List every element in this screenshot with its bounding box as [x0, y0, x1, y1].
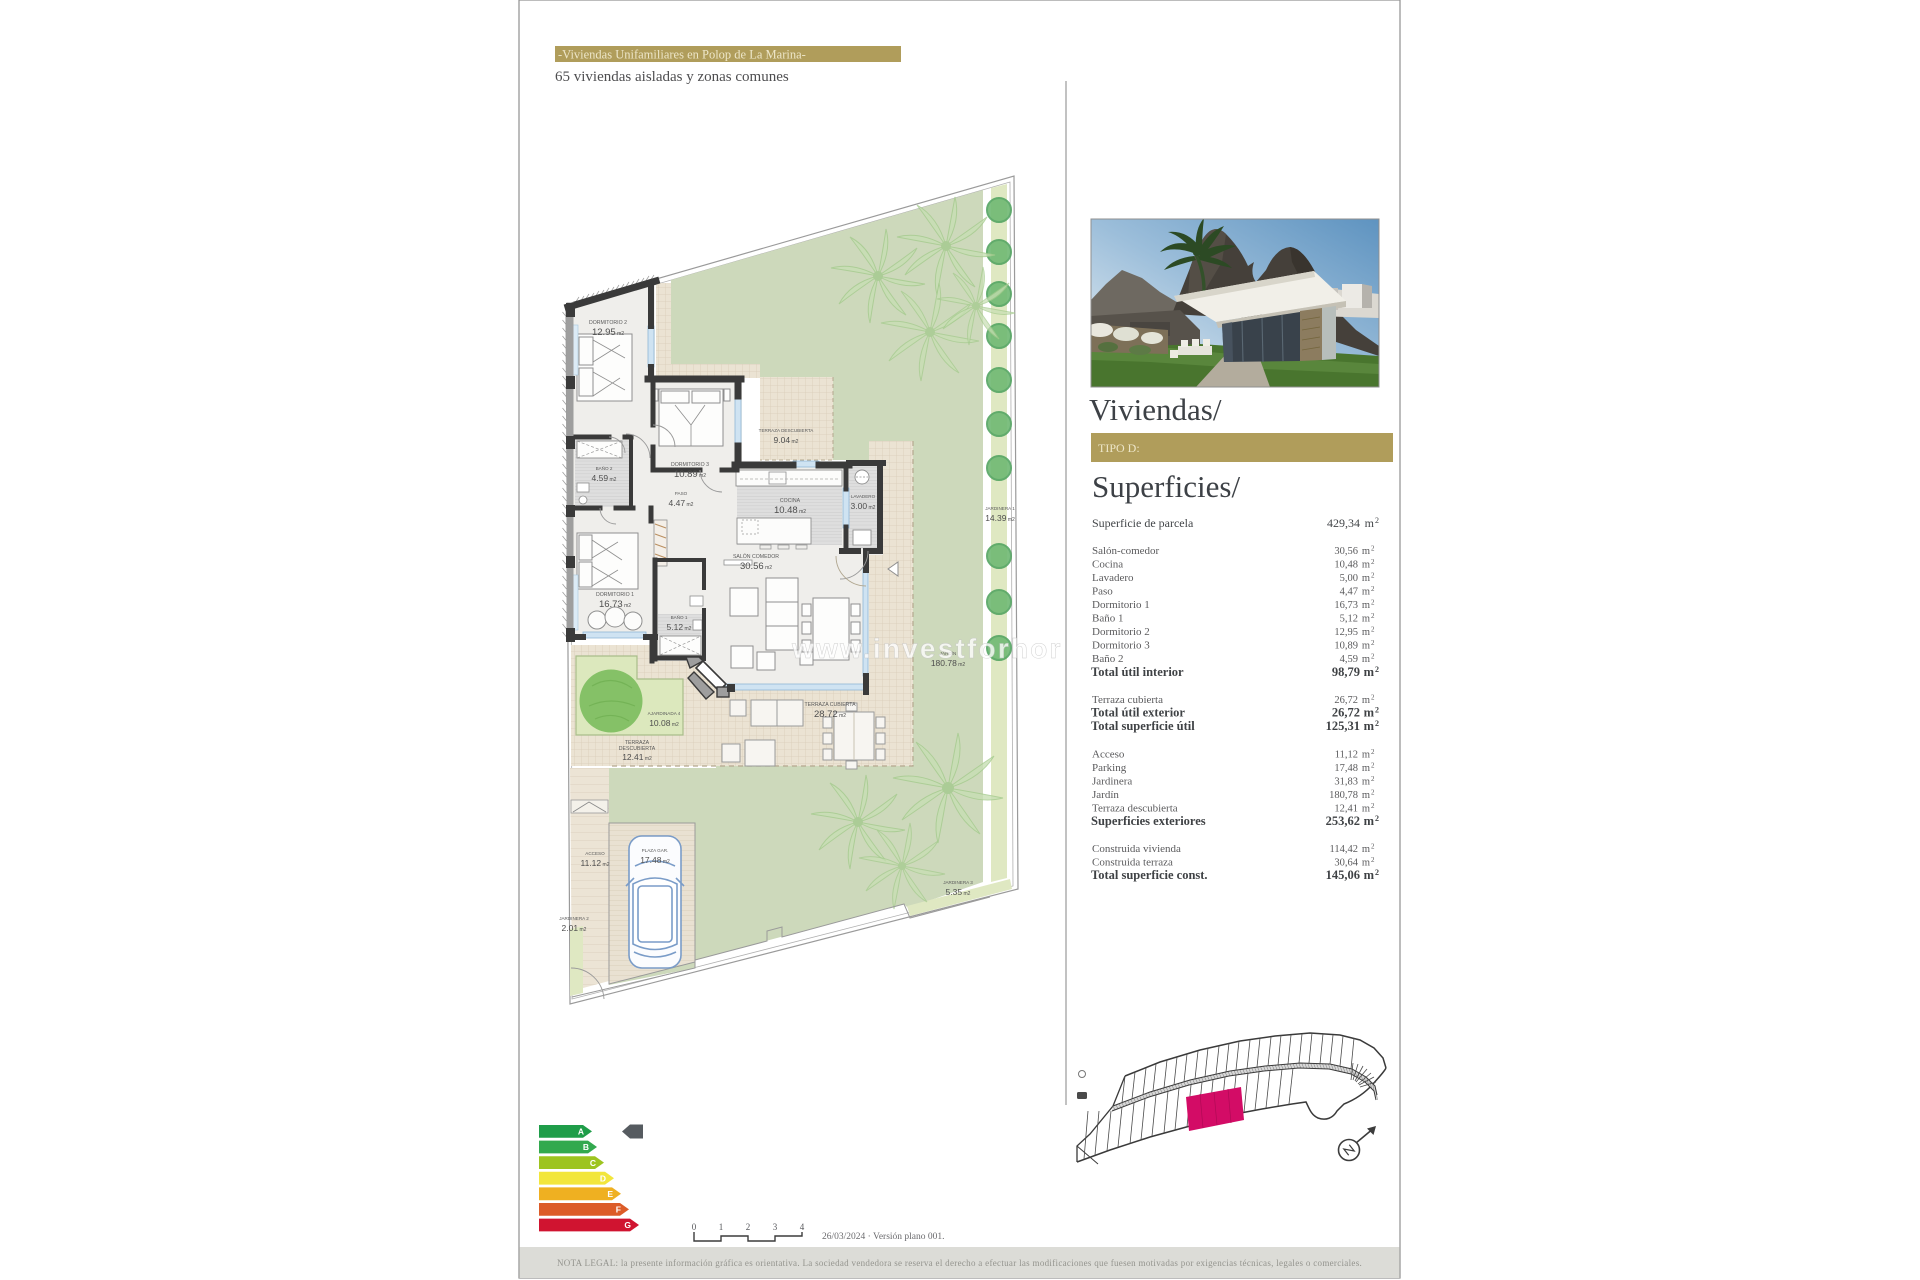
svg-text:2: 2 [1371, 789, 1375, 797]
svg-text:26/03/2024 · Versión plano 001: 26/03/2024 · Versión plano 001. [822, 1232, 945, 1242]
svg-text:PLAZA GAR.: PLAZA GAR. [642, 848, 669, 853]
svg-text:2: 2 [1375, 868, 1379, 877]
svg-text:PASO: PASO [675, 491, 688, 496]
svg-text:m: m [1362, 614, 1370, 625]
svg-text:Superficies exteriores: Superficies exteriores [1091, 814, 1206, 828]
svg-text:Cocina: Cocina [1092, 559, 1123, 571]
svg-text:Baño 2: Baño 2 [1092, 653, 1123, 665]
svg-text:SALÓN COMEDOR: SALÓN COMEDOR [733, 553, 779, 560]
svg-text:429,34: 429,34 [1327, 516, 1360, 530]
svg-text:2: 2 [1371, 585, 1375, 593]
svg-text:2: 2 [1375, 719, 1379, 728]
svg-text:114,42: 114,42 [1330, 844, 1359, 855]
svg-text:AJARDINADA 4: AJARDINADA 4 [648, 711, 681, 716]
svg-text:JARDINERA 2: JARDINERA 2 [559, 916, 589, 921]
svg-text:Total útil interior: Total útil interior [1091, 665, 1184, 679]
svg-text:Superficie de parcela: Superficie de parcela [1092, 516, 1194, 530]
svg-text:D: D [600, 1173, 606, 1183]
svg-text:145,06: 145,06 [1326, 868, 1360, 882]
svg-text:G: G [624, 1220, 631, 1230]
svg-text:Dormitorio 2: Dormitorio 2 [1092, 626, 1150, 638]
svg-text:m: m [1362, 695, 1370, 706]
svg-text:2: 2 [1375, 516, 1379, 525]
svg-text:m: m [1362, 763, 1370, 774]
svg-text:Total superficie útil: Total superficie útil [1091, 719, 1195, 733]
svg-text:m: m [1364, 814, 1375, 828]
svg-text:2: 2 [746, 1222, 751, 1232]
svg-text:m: m [1362, 641, 1370, 652]
svg-text:m: m [1364, 719, 1375, 733]
svg-text:26,72: 26,72 [1334, 695, 1358, 706]
svg-text:2: 2 [1375, 706, 1379, 715]
svg-text:125,31: 125,31 [1326, 719, 1360, 733]
svg-text:m: m [1362, 844, 1370, 855]
svg-text:2: 2 [1371, 558, 1375, 566]
svg-text:10,48: 10,48 [1334, 560, 1358, 571]
svg-text:5,00: 5,00 [1340, 573, 1358, 584]
svg-text:BAÑO 1: BAÑO 1 [671, 614, 688, 620]
svg-text:www.investforhor: www.investforhor [791, 633, 1063, 664]
svg-text:12,95: 12,95 [1334, 627, 1358, 638]
svg-text:m: m [1362, 858, 1370, 869]
svg-text:2: 2 [1375, 665, 1379, 674]
svg-text:Terraza descubierta: Terraza descubierta [1092, 803, 1178, 815]
svg-text:2: 2 [1371, 612, 1375, 620]
svg-text:Total superficie const.: Total superficie const. [1091, 868, 1208, 882]
svg-text:10,89: 10,89 [1334, 641, 1358, 652]
svg-text:12,41: 12,41 [1334, 804, 1358, 815]
svg-text:4,59: 4,59 [1340, 654, 1358, 665]
svg-text:m: m [1362, 587, 1370, 598]
svg-text:Acceso: Acceso [1092, 749, 1125, 761]
svg-text:B: B [583, 1142, 589, 1152]
svg-text:2: 2 [1371, 802, 1375, 810]
svg-text:F: F [616, 1205, 621, 1215]
svg-text:m: m [1362, 777, 1370, 788]
svg-text:m: m [1362, 654, 1370, 665]
svg-text:JARDINERA 3: JARDINERA 3 [943, 880, 973, 885]
svg-text:DORMITORIO 2: DORMITORIO 2 [589, 320, 627, 326]
svg-text:2: 2 [1371, 856, 1375, 864]
svg-text:2: 2 [1371, 599, 1375, 607]
svg-text:Salón-comedor: Salón-comedor [1092, 545, 1160, 557]
svg-text:m: m [1362, 750, 1370, 761]
svg-text:253,62: 253,62 [1326, 814, 1360, 828]
svg-text:m: m [1362, 600, 1370, 611]
svg-text:Jardín: Jardín [1092, 789, 1119, 801]
svg-text:16,73: 16,73 [1334, 600, 1358, 611]
svg-text:1: 1 [719, 1222, 724, 1232]
svg-text:3: 3 [773, 1222, 778, 1232]
svg-text:E: E [607, 1189, 613, 1199]
svg-text:Superficies/: Superficies/ [1092, 469, 1240, 504]
svg-text:2: 2 [1371, 626, 1375, 634]
svg-text:65 viviendas aisladas y zonas: 65 viviendas aisladas y zonas comunes [555, 69, 789, 85]
svg-text:26,72: 26,72 [1332, 706, 1360, 720]
svg-text:m: m [1362, 804, 1370, 815]
svg-text:Paso: Paso [1092, 586, 1113, 598]
svg-text:2: 2 [1371, 843, 1375, 851]
svg-text:31,83: 31,83 [1334, 777, 1358, 788]
svg-text:m: m [1364, 868, 1375, 882]
svg-text:2: 2 [1371, 694, 1375, 702]
svg-text:Terraza cubierta: Terraza cubierta [1092, 694, 1163, 706]
svg-text:JARDINERA 1: JARDINERA 1 [985, 506, 1015, 511]
svg-text:DORMITORIO 1: DORMITORIO 1 [596, 592, 634, 598]
svg-text:4,47: 4,47 [1340, 587, 1358, 598]
svg-text:TIPO D:: TIPO D: [1098, 441, 1140, 455]
svg-text:m: m [1362, 560, 1370, 571]
svg-text:-Viviendas Unifamiliares en Po: -Viviendas Unifamiliares en Polop de La … [558, 48, 806, 62]
svg-text:COCINA: COCINA [780, 498, 801, 504]
svg-text:LAVADERO: LAVADERO [851, 494, 876, 499]
svg-text:m: m [1364, 665, 1375, 679]
svg-text:m: m [1365, 516, 1375, 530]
svg-text:C: C [590, 1158, 596, 1168]
svg-text:2: 2 [1371, 653, 1375, 661]
svg-text:2: 2 [1371, 572, 1375, 580]
svg-text:TERRAZA DESCUBIERTA: TERRAZA DESCUBIERTA [759, 428, 815, 433]
svg-text:A: A [578, 1127, 584, 1137]
svg-text:m: m [1362, 627, 1370, 638]
svg-text:m: m [1362, 790, 1370, 801]
svg-text:2: 2 [1371, 775, 1375, 783]
svg-text:Dormitorio 1: Dormitorio 1 [1092, 599, 1150, 611]
svg-text:Construida terraza: Construida terraza [1092, 857, 1173, 869]
svg-text:98,79: 98,79 [1332, 665, 1360, 679]
svg-text:NOTA LEGAL: la presente inform: NOTA LEGAL: la presente información gráf… [557, 1258, 1362, 1268]
svg-text:Lavadero: Lavadero [1092, 572, 1134, 584]
svg-text:TERRAZA CUBIERTA: TERRAZA CUBIERTA [804, 702, 856, 708]
svg-text:30,64: 30,64 [1334, 858, 1358, 869]
svg-text:m: m [1364, 706, 1375, 720]
svg-text:Parking: Parking [1092, 762, 1127, 774]
svg-text:2: 2 [1371, 545, 1375, 553]
svg-text:2: 2 [1375, 814, 1379, 823]
svg-text:4: 4 [800, 1222, 805, 1232]
svg-text:DORMITORIO 3: DORMITORIO 3 [671, 462, 709, 468]
svg-text:Baño 1: Baño 1 [1092, 613, 1123, 625]
svg-text:2: 2 [1371, 748, 1375, 756]
svg-text:11,12: 11,12 [1335, 750, 1358, 761]
svg-text:Construida vivienda: Construida vivienda [1092, 843, 1181, 855]
svg-text:Viviendas/: Viviendas/ [1089, 392, 1222, 427]
svg-text:ACCESO: ACCESO [585, 851, 605, 856]
svg-text:m: m [1362, 573, 1370, 584]
svg-text:Total útil exterior: Total útil exterior [1091, 706, 1185, 720]
svg-text:2: 2 [1371, 639, 1375, 647]
svg-text:17,48: 17,48 [1334, 763, 1358, 774]
svg-text:0: 0 [692, 1222, 697, 1232]
svg-text:180,78: 180,78 [1329, 790, 1358, 801]
svg-text:BAÑO 2: BAÑO 2 [596, 465, 613, 471]
svg-text:5,12: 5,12 [1340, 614, 1358, 625]
svg-text:Jardinera: Jardinera [1092, 776, 1132, 788]
svg-text:2: 2 [1371, 762, 1375, 770]
svg-text:Dormitorio 3: Dormitorio 3 [1092, 640, 1150, 652]
svg-text:30,56: 30,56 [1334, 546, 1358, 557]
svg-text:m: m [1362, 546, 1370, 557]
